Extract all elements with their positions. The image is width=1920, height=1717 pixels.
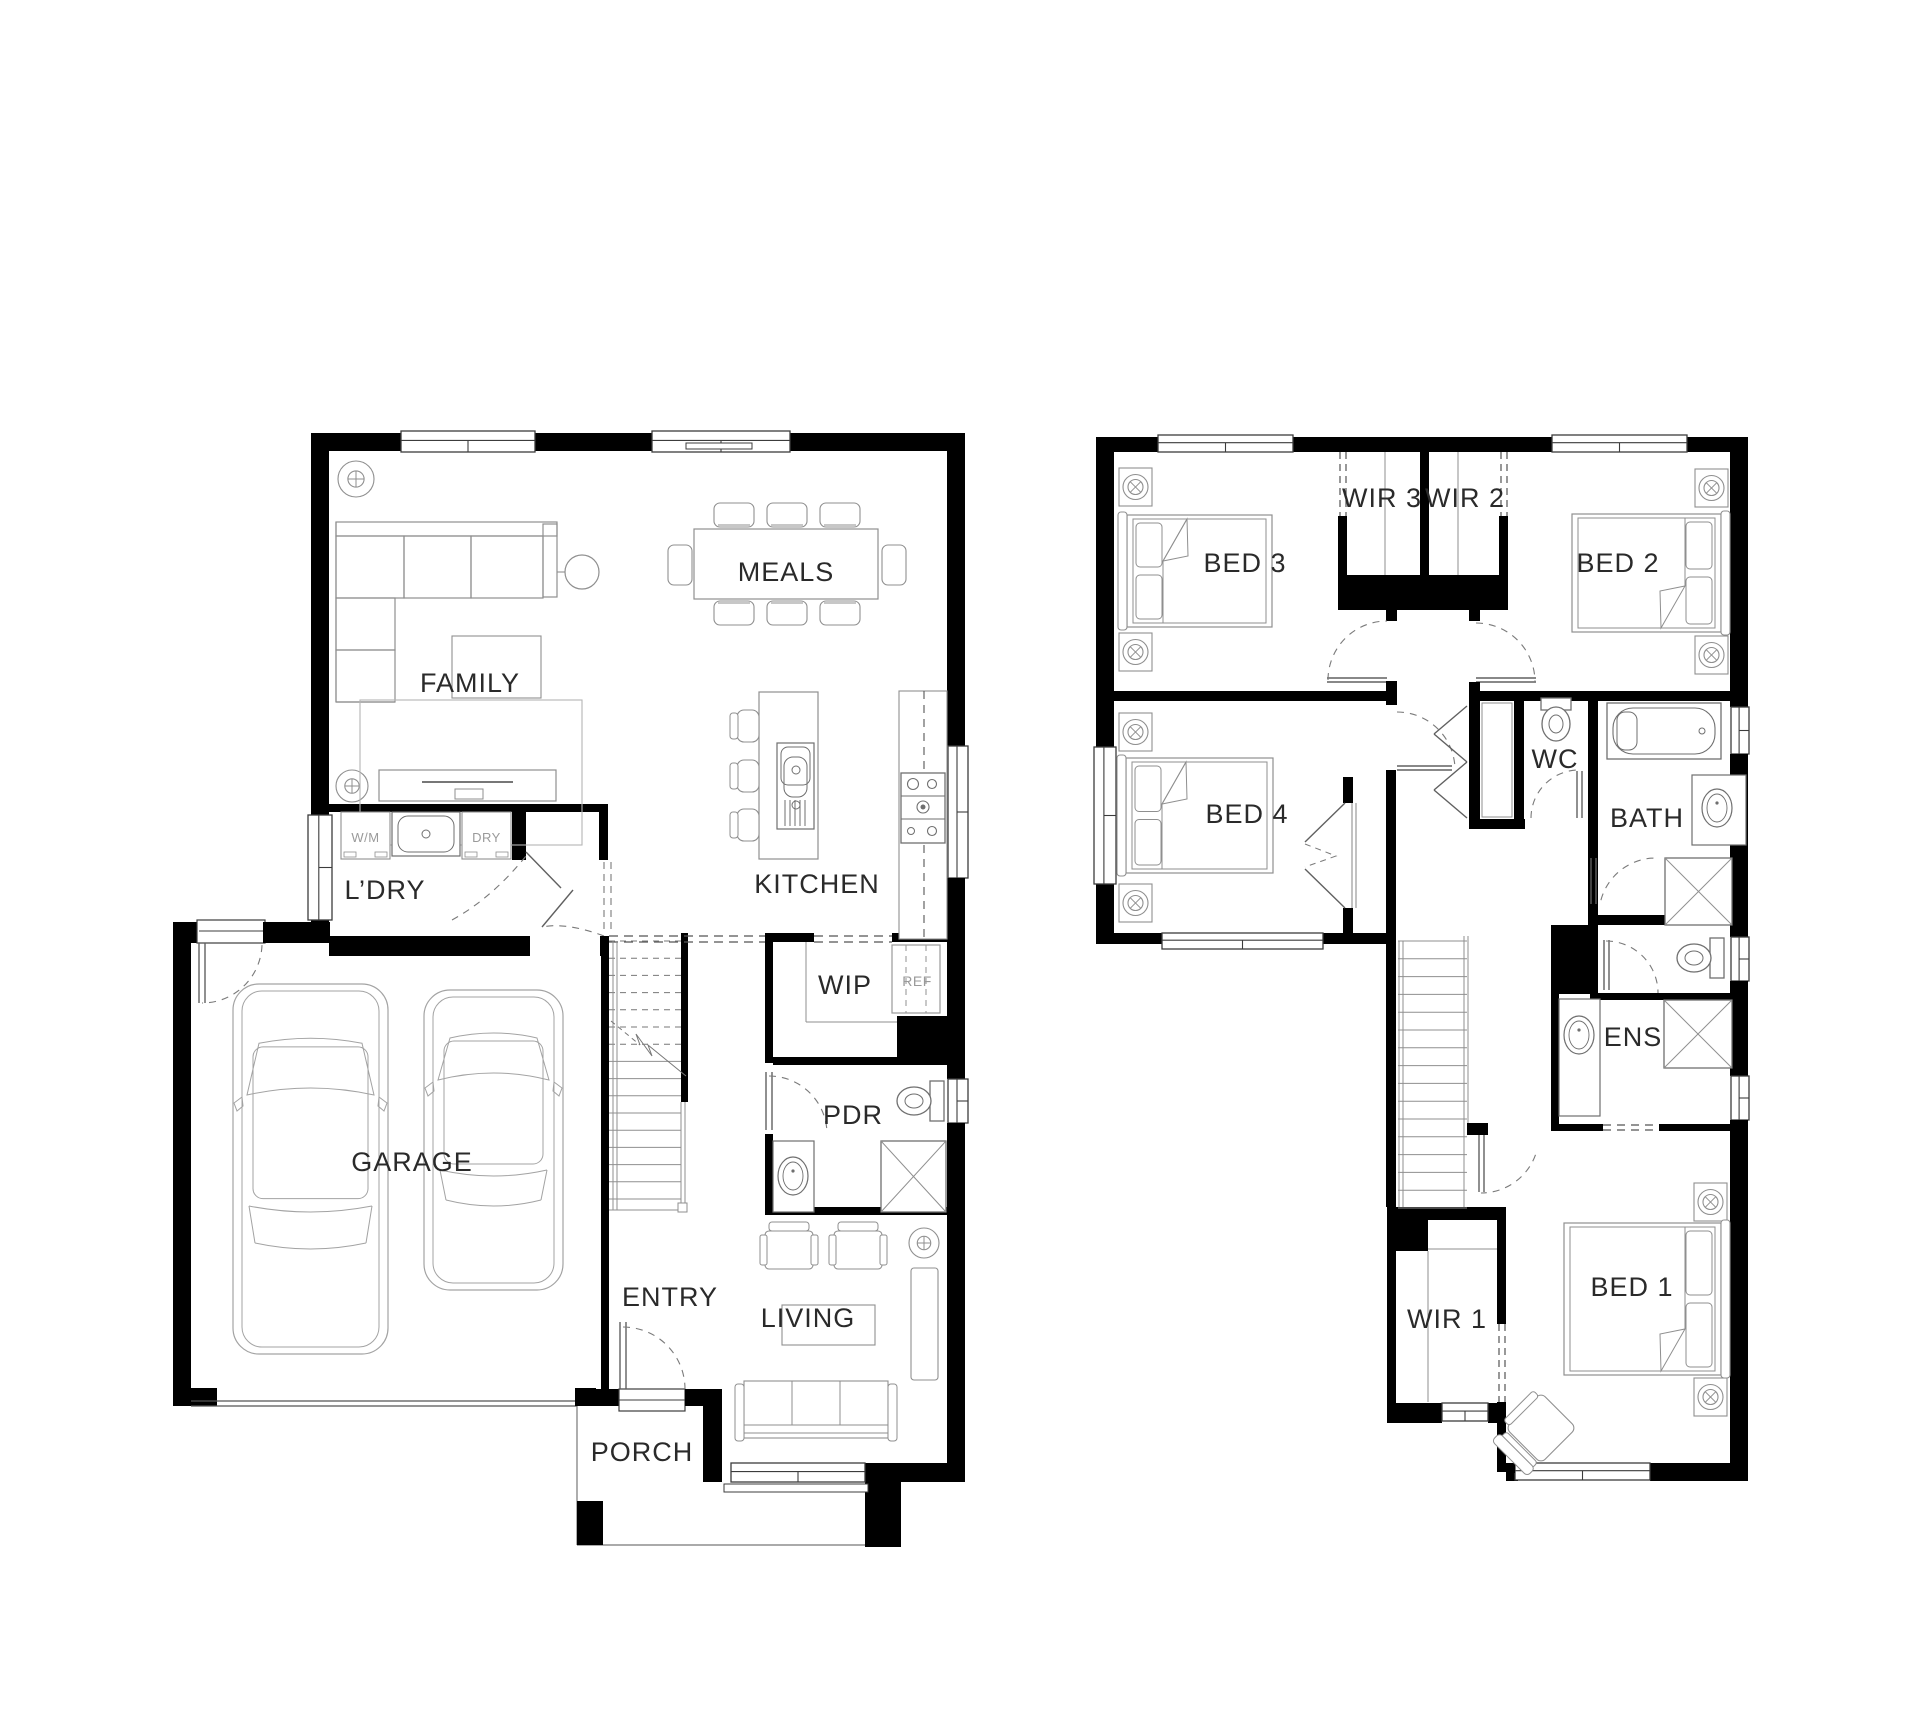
svg-text:DRY: DRY [472, 830, 501, 845]
svg-text:PORCH: PORCH [591, 1437, 694, 1467]
svg-text:LIVING: LIVING [761, 1303, 856, 1333]
svg-text:BED 3: BED 3 [1203, 548, 1286, 578]
svg-text:ENTRY: ENTRY [622, 1282, 718, 1312]
svg-text:BED 1: BED 1 [1590, 1272, 1673, 1302]
svg-text:PDR: PDR [823, 1100, 883, 1130]
svg-text:MEALS: MEALS [738, 557, 835, 587]
svg-text:L’DRY: L’DRY [344, 875, 425, 905]
svg-text:FAMILY: FAMILY [420, 668, 520, 698]
svg-text:WIR 3: WIR 3 [1342, 483, 1422, 513]
svg-text:WIP: WIP [818, 970, 872, 1000]
svg-text:ENS: ENS [1604, 1022, 1663, 1052]
svg-text:BED 4: BED 4 [1205, 799, 1288, 829]
svg-text:KITCHEN: KITCHEN [754, 869, 880, 899]
svg-text:REF: REF [902, 973, 932, 989]
svg-text:WC: WC [1532, 744, 1579, 774]
svg-text:WIR 1: WIR 1 [1407, 1304, 1487, 1334]
svg-text:GARAGE: GARAGE [351, 1147, 473, 1177]
svg-text:BATH: BATH [1610, 803, 1684, 833]
svg-text:BED 2: BED 2 [1576, 548, 1659, 578]
svg-text:WIR 2: WIR 2 [1425, 483, 1505, 513]
svg-text:W/M: W/M [351, 830, 379, 845]
